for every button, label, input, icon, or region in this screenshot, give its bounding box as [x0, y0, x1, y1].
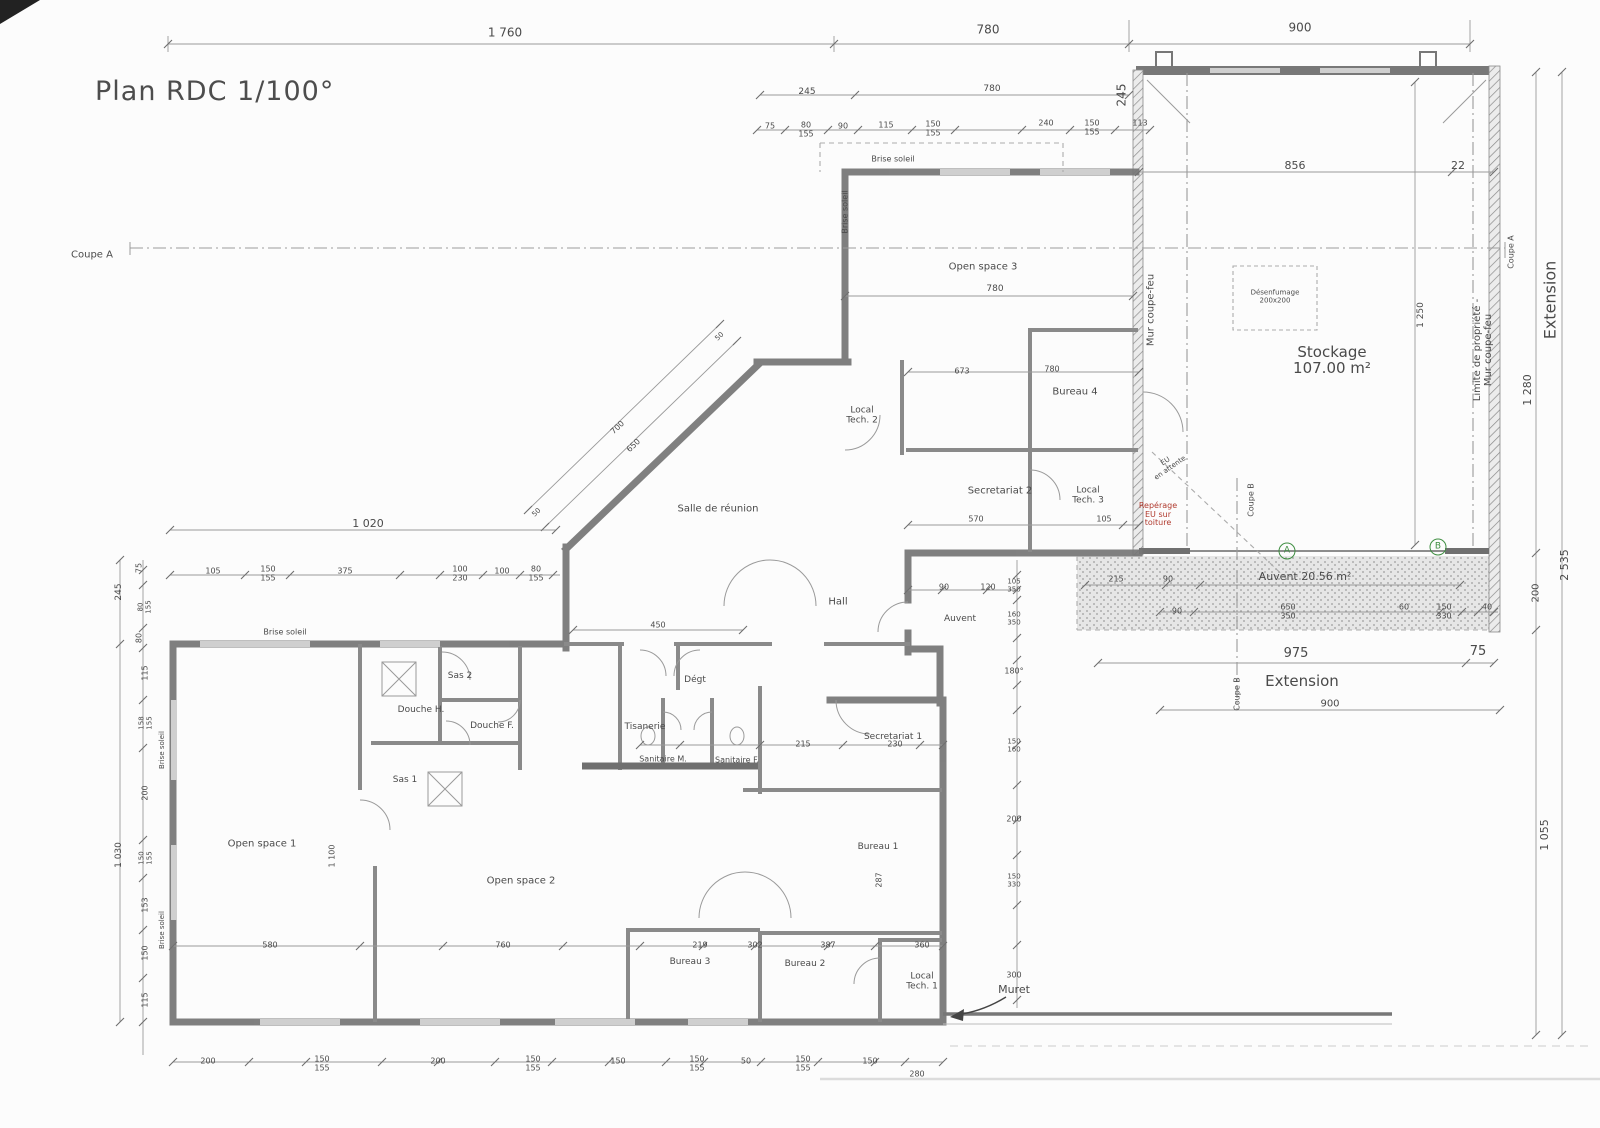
floor-plan-drawing [0, 0, 1600, 1128]
dimension-ticks [116, 40, 1566, 1066]
muret-wall [943, 997, 1392, 1024]
interior-walls [360, 330, 1136, 1020]
auvent-hatched-zone [1077, 556, 1489, 630]
section-line-ticks [130, 242, 1505, 258]
floor-plan-page: Plan RDC 1/100° Coupe A1 760780900245780… [0, 0, 1600, 1128]
page-title: Plan RDC 1/100° [95, 76, 334, 107]
dimension-lines [120, 20, 1562, 1062]
fixtures [382, 662, 744, 806]
door-arcs [360, 392, 1183, 984]
stockage-walls [1133, 52, 1500, 632]
exterior-walls [173, 172, 1139, 1022]
scan-lines [820, 1046, 1600, 1079]
window-segments [171, 68, 1390, 1025]
